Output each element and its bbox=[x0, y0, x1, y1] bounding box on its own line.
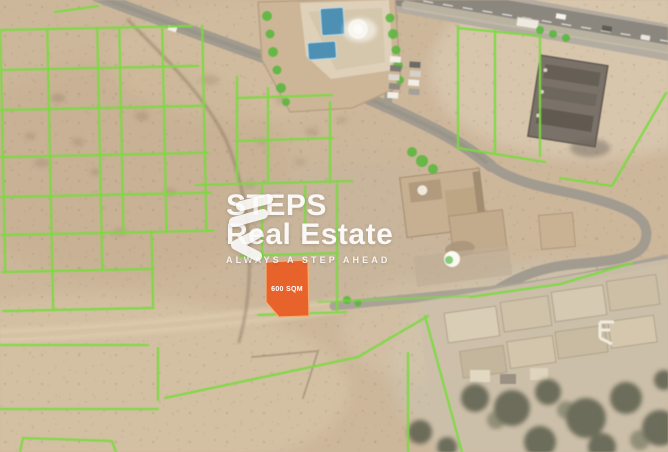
satellite-plot-map-image: 600 SQM STEPS Real Estate ALWAYS A STEP … bbox=[0, 0, 668, 452]
plot-highlight-layer: 600 SQM bbox=[0, 0, 668, 452]
plot-area-label: 600 SQM bbox=[271, 286, 303, 293]
